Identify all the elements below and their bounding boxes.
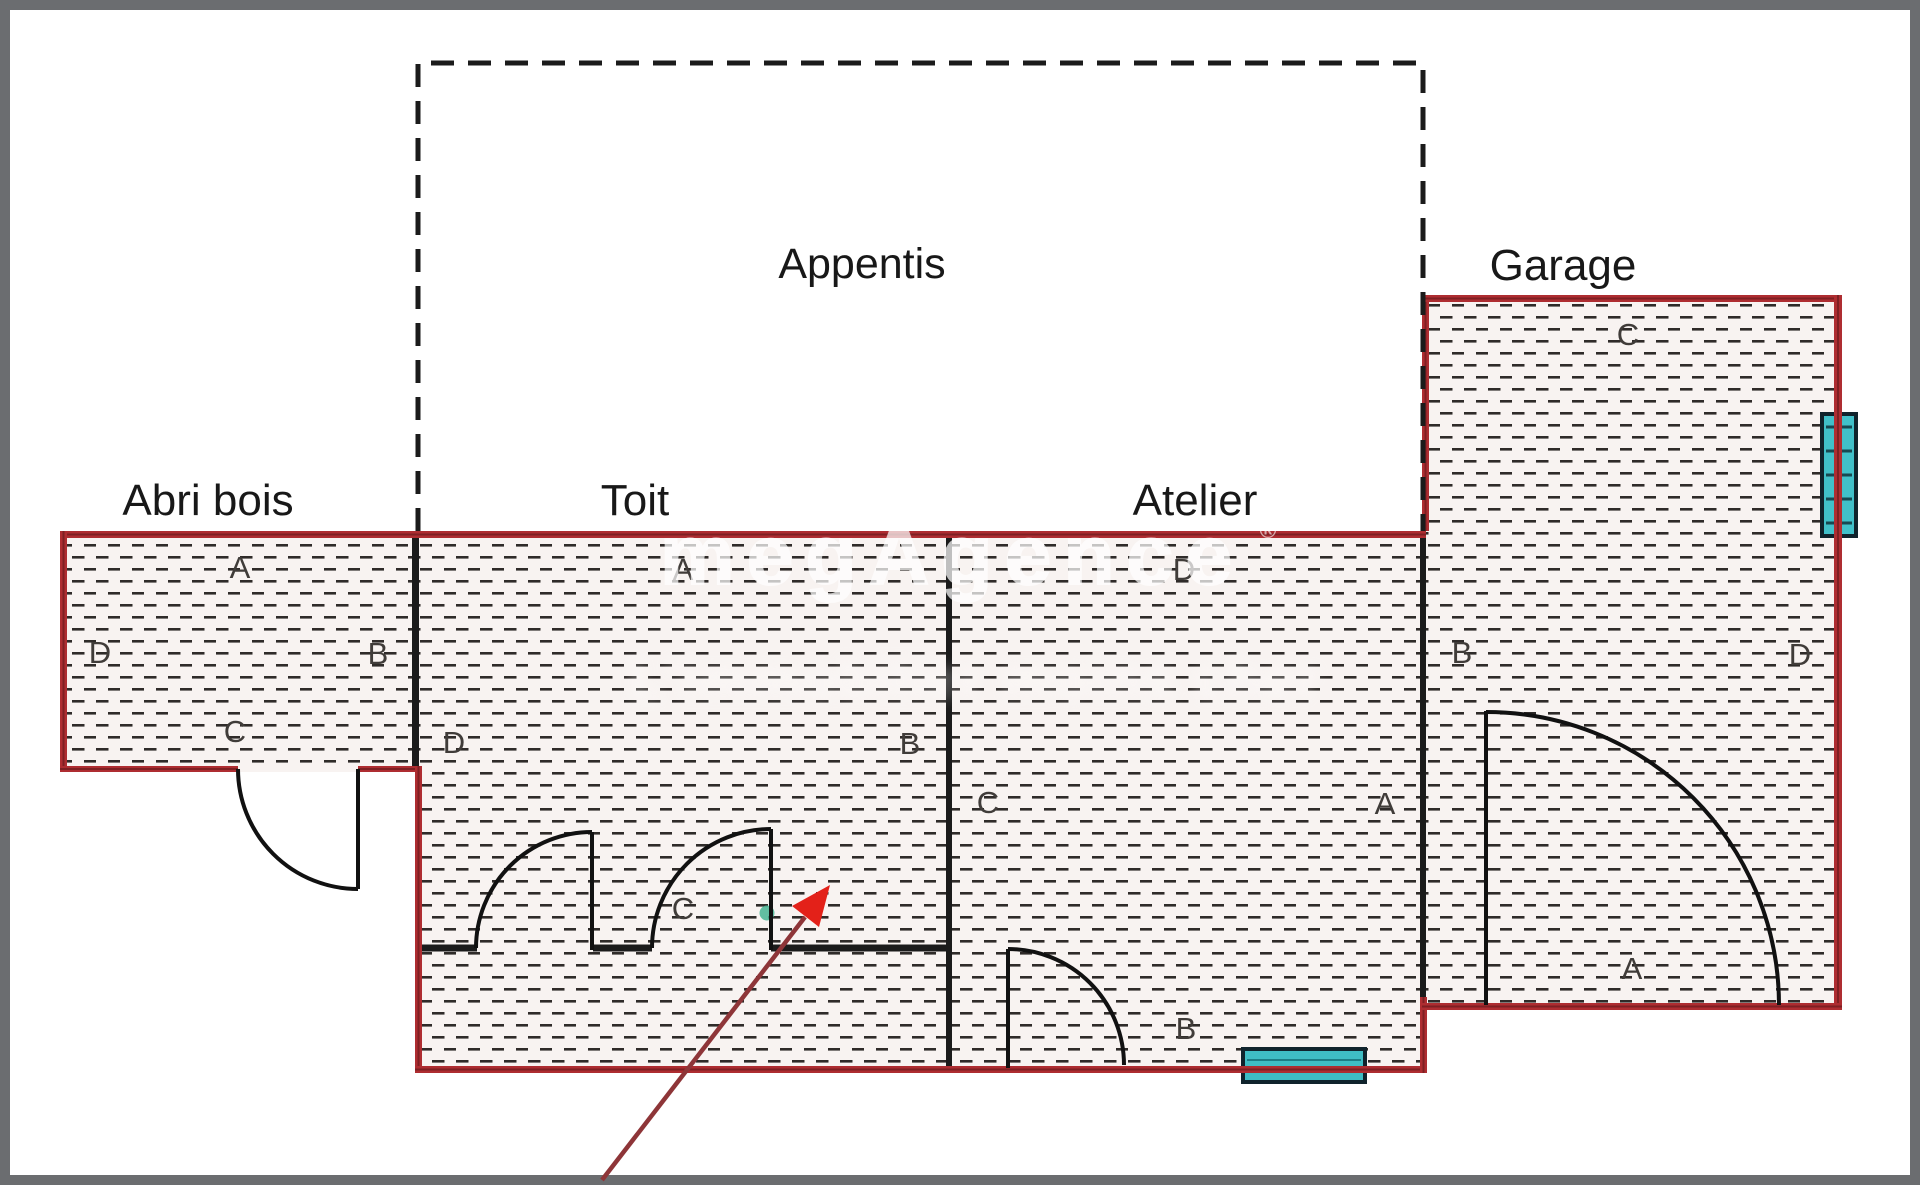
svg-text:Garage: Garage bbox=[1490, 241, 1637, 290]
svg-text:B: B bbox=[368, 636, 389, 671]
svg-text:C: C bbox=[672, 891, 694, 926]
svg-text:®: ® bbox=[1260, 517, 1277, 543]
svg-text:B: B bbox=[1176, 1011, 1197, 1046]
svg-text:A: A bbox=[1622, 951, 1643, 986]
svg-text:A: A bbox=[230, 550, 251, 585]
svg-text:C: C bbox=[977, 785, 999, 820]
svg-text:D: D bbox=[443, 725, 465, 760]
svg-text:L'immobilier moins cher: L'immobilier moins cher bbox=[629, 647, 1320, 710]
svg-text:A: A bbox=[1375, 786, 1396, 821]
svg-text:D: D bbox=[1789, 637, 1811, 672]
svg-text:C: C bbox=[1617, 317, 1639, 352]
svg-text:C: C bbox=[224, 714, 246, 749]
svg-text:Abri bois: Abri bois bbox=[122, 476, 293, 525]
svg-text:Appentis: Appentis bbox=[778, 240, 945, 288]
svg-text:D: D bbox=[89, 635, 111, 670]
svg-text:B: B bbox=[900, 726, 921, 761]
svg-text:megAgence: megAgence bbox=[660, 508, 1244, 602]
svg-text:B: B bbox=[1452, 635, 1473, 670]
